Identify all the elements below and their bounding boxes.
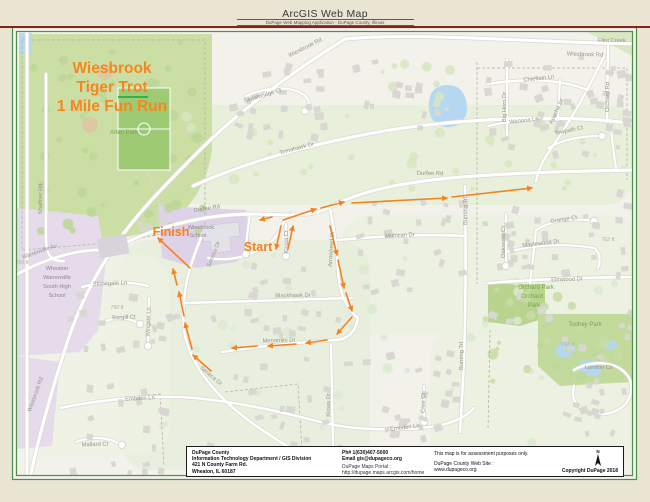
footer-info-box: DuPage County Information Technology Dep…: [186, 446, 624, 477]
event-title-line2: Tiger Trot: [28, 78, 196, 97]
map-label: Blackhawk Dr: [275, 293, 311, 300]
map-label: Menomini Dr: [262, 337, 295, 344]
map-label: School: [189, 233, 206, 239]
map-label: 790 ft: [111, 305, 125, 311]
map-label: Mallard Ct: [82, 442, 109, 449]
map-label: Warrenville: [43, 275, 71, 281]
footer-notes: This map is for assessment purposes only…: [434, 450, 552, 475]
footer-contact: Ph# 1(630)407-5000 Email gis@dupageco.or…: [342, 450, 434, 475]
page-subtitle: DuPage Web Mapping Application - DuPage …: [0, 20, 650, 25]
map-label: Kiowa Ct: [284, 230, 290, 254]
map-label: Landon Cir: [585, 365, 613, 371]
event-title-line3: 1 Mile Fun Run: [28, 97, 196, 116]
map-label: Atten Park: [110, 130, 139, 136]
arcgis-print-page: ArcGIS Web Map DuPage Web Mapping Applic…: [0, 0, 650, 502]
map-label: Burning Trl: [459, 342, 465, 370]
event-title-line1: Wiesbrook: [28, 59, 196, 78]
disclaimer: This map is for assessment purposes only…: [434, 451, 552, 457]
spellcheck-underline: Trot: [118, 79, 147, 98]
agency-city: Wheaton, IL 60187: [192, 469, 342, 475]
map-label: Finish: [153, 225, 190, 239]
map-label: Flint Creek: [598, 38, 626, 44]
portal-url: http://dupage.maps.arcgis.com/home: [342, 470, 434, 476]
copyright: Copyright DuPage 2018: [562, 468, 618, 474]
map-label: Cree Ct: [421, 392, 428, 413]
footer-right: N Copyright DuPage 2018: [552, 450, 619, 475]
maroon-divider: [0, 26, 650, 28]
map-label: Orchard Rd: [605, 82, 611, 112]
map-label: Wheaton: [46, 266, 68, 272]
map-label: Stonegate Ln: [93, 280, 128, 287]
map-label: 762 ft: [602, 237, 616, 243]
north-arrow-icon: [593, 454, 603, 468]
website-url: www.dupageco.org: [434, 467, 552, 473]
map-label: Elmwood Dr: [551, 276, 583, 283]
map-label: Toohey Park: [568, 322, 602, 328]
map-label: Shaffner Rd: [38, 184, 44, 215]
map-label: 650 ft: [16, 260, 30, 266]
map-label: Bargill Ct: [112, 315, 136, 322]
map-label: School: [48, 293, 65, 299]
map-label: Kiowa Dr: [326, 393, 332, 417]
map-label: South High: [43, 284, 71, 290]
map-label: Orchard Park: [518, 285, 555, 291]
footer-agency: DuPage County Information Technology Dep…: [192, 450, 342, 475]
map-label: Big Horn Dr: [502, 92, 508, 122]
map-label: Wiesbrook: [188, 225, 215, 231]
map-label: Start: [244, 240, 273, 254]
map-label: Durfee Rd: [417, 171, 444, 177]
map-label: Burning Trl: [463, 197, 469, 225]
contact-email: Email gis@dupageco.org: [342, 456, 434, 462]
map-label: Orchard: [521, 294, 543, 300]
event-title: Wiesbrook Tiger Trot 1 Mile Fun Run: [28, 59, 196, 116]
north-arrow: N: [593, 449, 603, 469]
map-label: Park: [528, 303, 541, 309]
map-label: Oakwood Ct: [501, 226, 507, 258]
map-label: 750 ft: [562, 342, 576, 348]
map-label: Wiesbrook Rd: [567, 51, 604, 58]
